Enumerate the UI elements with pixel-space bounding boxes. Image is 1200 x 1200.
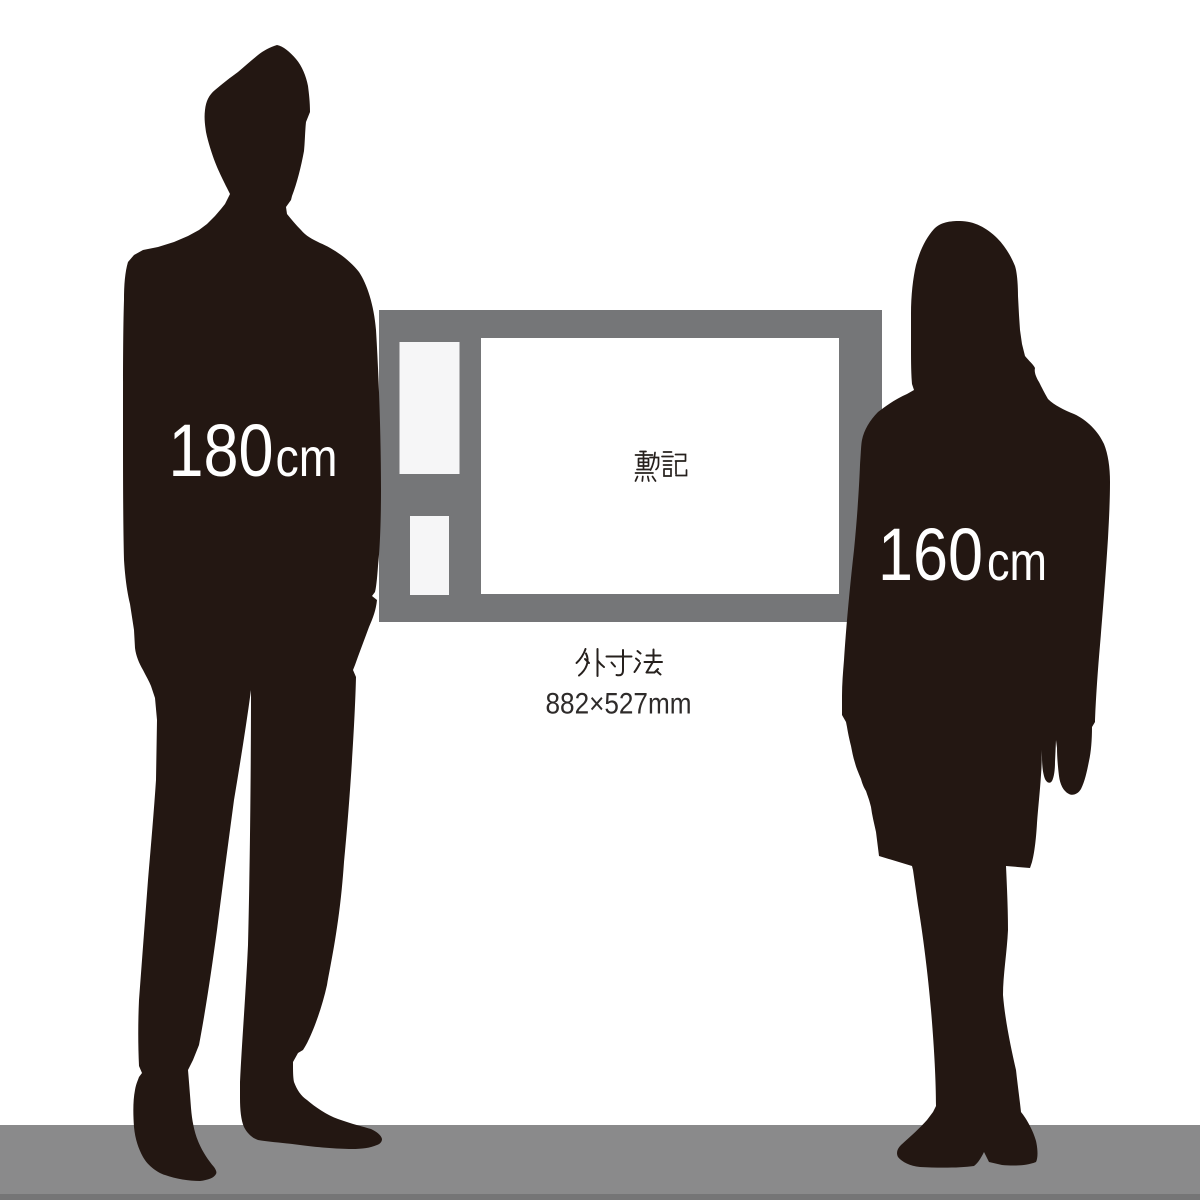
svg-text:cm: cm (987, 532, 1047, 592)
svg-text:882×527mm: 882×527mm (546, 688, 692, 721)
svg-text:cm: cm (276, 428, 338, 488)
svg-text:180: 180 (169, 409, 274, 492)
svg-text:160: 160 (878, 513, 983, 596)
